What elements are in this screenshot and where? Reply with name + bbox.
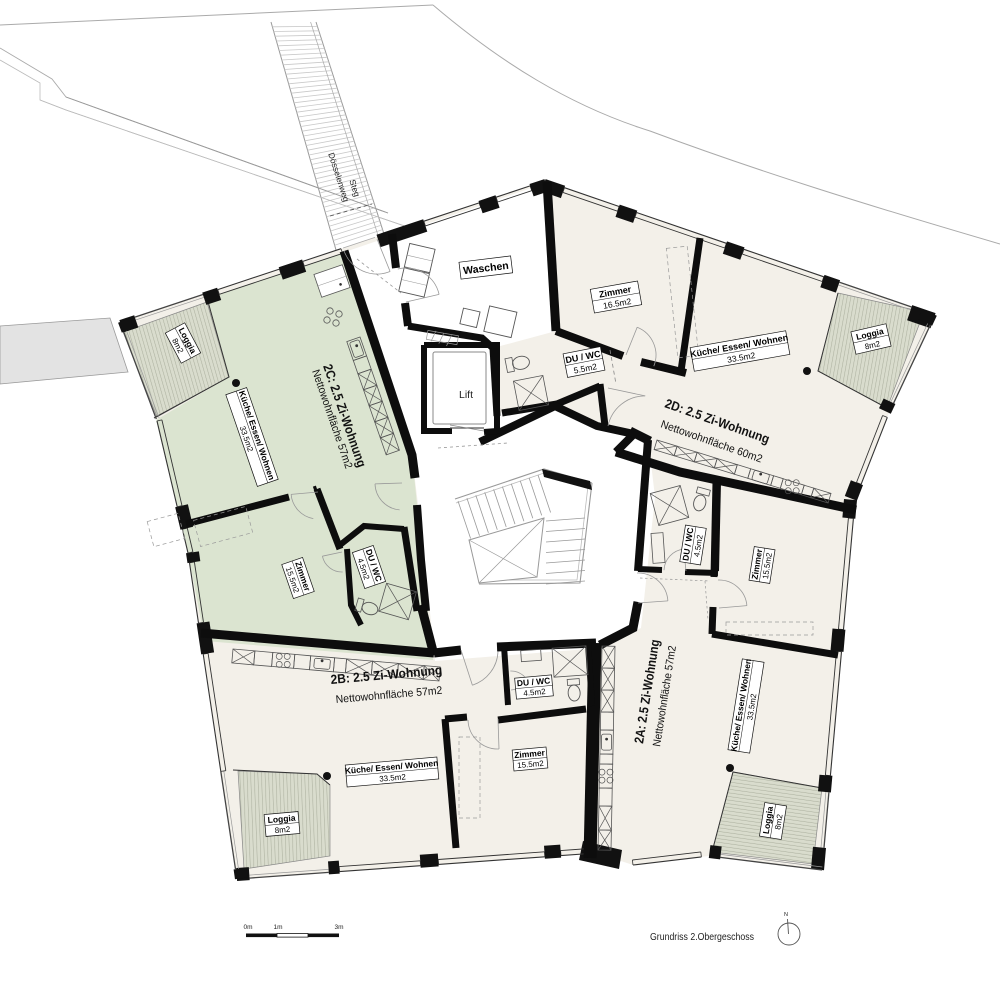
svg-text:Grundriss 2.Obergeschoss: Grundriss 2.Obergeschoss [650, 931, 754, 943]
svg-text:3m: 3m [334, 924, 343, 931]
svg-text:1m: 1m [273, 924, 282, 931]
svg-text:8m2: 8m2 [274, 825, 291, 835]
svg-text:N: N [784, 912, 788, 918]
svg-text:Lift: Lift [459, 389, 473, 401]
svg-text:0m: 0m [243, 924, 252, 931]
